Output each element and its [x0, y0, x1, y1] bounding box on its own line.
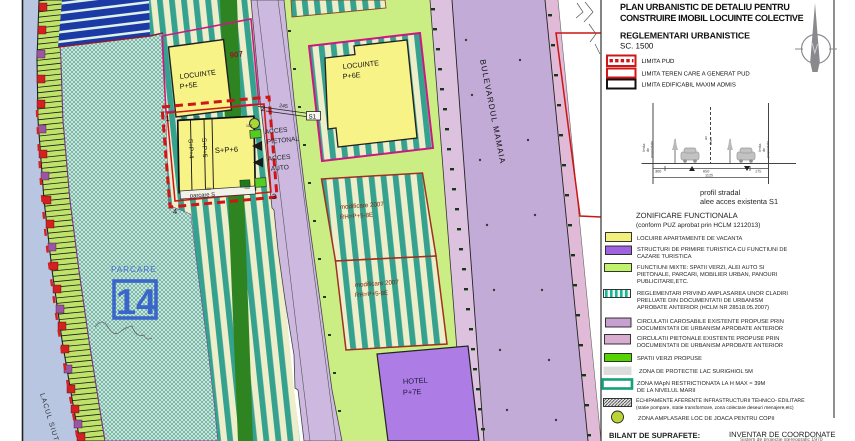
svg-text:ax: ax	[704, 136, 708, 140]
svg-text:100: 100	[244, 186, 250, 190]
svg-text:245: 245	[279, 103, 288, 110]
svg-text:S1: S1	[309, 114, 317, 121]
svg-text:FUNCTIUNI MIXTE: SPATII VERZI,: FUNCTIUNI MIXTE: SPATII VERZI, ALEI AUTO…	[637, 265, 765, 271]
svg-text:STRUCTURI DE PRIMIRE TURISTICA: STRUCTURI DE PRIMIRE TURISTICA CU FUNCTI…	[637, 247, 788, 253]
svg-text:907: 907	[229, 49, 244, 60]
svg-text:2: 2	[261, 104, 265, 113]
svg-text:3: 3	[272, 192, 276, 201]
svg-text:ZONA DE PROTECTIE LAC SURIGHIO: ZONA DE PROTECTIE LAC SURIGHIOL 5M	[639, 369, 753, 375]
svg-text:200: 200	[194, 116, 200, 120]
svg-text:PARCARE: PARCARE	[111, 264, 156, 274]
svg-text:LOCUIRE APARTAMENTE DE VACANTA: LOCUIRE APARTAMENTE DE VACANTA	[637, 236, 743, 242]
svg-text:175: 175	[755, 170, 761, 174]
svg-text:REGLEMENTARI PRIVIND AMPLASARE: REGLEMENTARI PRIVIND AMPLASAREA UNOR CLA…	[637, 291, 788, 297]
svg-text:SC. 1500: SC. 1500	[620, 42, 654, 51]
svg-text:DOCUMENTATII DE URBANISM APROB: DOCUMENTATII DE URBANISM APROBATE ANTERI…	[637, 343, 783, 349]
svg-text:LIMITA EDIFICABIL MAXIM ADMIS: LIMITA EDIFICABIL MAXIM ADMIS	[642, 82, 736, 89]
svg-text:(statie pompare, statie transf: (statie pompare, statie transformare, zo…	[636, 405, 794, 411]
svg-text:1125: 1125	[705, 174, 713, 178]
svg-text:PLAN URBANISTIC DE DETALIU PEN: PLAN URBANISTIC DE DETALIU PENTRU	[620, 2, 790, 12]
svg-text:proprietate: proprietate	[650, 141, 654, 158]
svg-text:CIRCULATII CAROSABILE EXISTENT: CIRCULATII CAROSABILE EXISTENTE PROPUSE …	[637, 319, 784, 325]
svg-text:DOCUMENTATII DE URBANISM APROB: DOCUMENTATII DE URBANISM APROBATE ANTERI…	[637, 326, 783, 332]
svg-text:proprietate: proprietate	[766, 141, 770, 158]
svg-text:SPATII VERZI PROPUSE: SPATII VERZI PROPUSE	[637, 356, 702, 362]
svg-text:100: 100	[179, 117, 185, 121]
svg-text:PRELUATE DIN DOCUMENTATII DE U: PRELUATE DIN DOCUMENTATII DE URBANISM	[637, 298, 763, 304]
svg-text:REGLEMENTARI URBANISTICE: REGLEMENTARI URBANISTICE	[620, 31, 750, 41]
svg-text:APROBATE ANTERIOR (HCLM NR 285: APROBATE ANTERIOR (HCLM NR 28518.05.2007…	[637, 304, 769, 311]
svg-text:ZONA MApN RESTRICTIONATA LA H: ZONA MApN RESTRICTIONATA LA H MAX = 39M	[637, 381, 766, 387]
svg-text:BILANT DE SUPRAFETE:: BILANT DE SUPRAFETE:	[609, 431, 700, 440]
svg-text:14: 14	[116, 281, 156, 322]
svg-text:100: 100	[246, 124, 252, 128]
svg-text:profil stradal: profil stradal	[700, 188, 741, 197]
svg-text:1: 1	[166, 114, 170, 123]
svg-text:S+P+5: S+P+5	[200, 138, 208, 158]
svg-text:100: 100	[205, 187, 211, 191]
svg-text:CIRCULATII PIETONALE EXISTENTE: CIRCULATII PIETONALE EXISTENTE PROPUSE P…	[637, 336, 779, 342]
svg-text:S+P+4: S+P+4	[187, 139, 195, 159]
svg-text:LIMITA TEREN CARE A GENERAT PU: LIMITA TEREN CARE A GENERAT PUD	[642, 71, 751, 78]
svg-text:ZONIFICARE FUNCTIONALA: ZONIFICARE FUNCTIONALA	[636, 211, 739, 220]
svg-text:parcare S: parcare S	[190, 191, 216, 199]
svg-text:PIETONALE, PARCARI, MOBILIER U: PIETONALE, PARCARI, MOBILIER URBAN, PANO…	[637, 272, 778, 278]
svg-text:(conform PUZ aprobat prin HCLM: (conform PUZ aprobat prin HCLM 1212013)	[636, 222, 760, 229]
svg-text:DE LA NIVELUL MARII: DE LA NIVELUL MARII	[637, 388, 696, 394]
svg-text:Sistem de proiectie stereograf: Sistem de proiectie stereografic 1970	[740, 437, 823, 441]
svg-text:HOTEL: HOTEL	[403, 376, 428, 386]
svg-text:alee acces existenta S1: alee acces existenta S1	[700, 197, 778, 206]
svg-text:CAZARE TURISTICA: CAZARE TURISTICA	[637, 254, 692, 260]
svg-text:S+P+6: S+P+6	[215, 145, 239, 155]
svg-text:PUBLICITARE,ETC.: PUBLICITARE,ETC.	[637, 279, 689, 285]
svg-text:P+6E: P+6E	[342, 70, 361, 81]
svg-text:LIMITA PUD: LIMITA PUD	[642, 58, 676, 65]
svg-text:ECHIPAMENTE AFERENTE INFRASTRU: ECHIPAMENTE AFERENTE INFRASTRUCTURII TEH…	[636, 398, 805, 404]
svg-text:CONSTRUIRE IMOBIL LOCUINTE COL: CONSTRUIRE IMOBIL LOCUINTE COLECTIVE	[620, 13, 804, 23]
svg-text:4: 4	[173, 207, 177, 216]
svg-text:ZONA AMPLASARE LOC DE JOACA PE: ZONA AMPLASARE LOC DE JOACA PENTRU COPII	[638, 416, 775, 422]
svg-text:P+7E: P+7E	[403, 387, 422, 397]
svg-text:drum: drum	[709, 137, 713, 145]
svg-text:300: 300	[655, 170, 661, 174]
